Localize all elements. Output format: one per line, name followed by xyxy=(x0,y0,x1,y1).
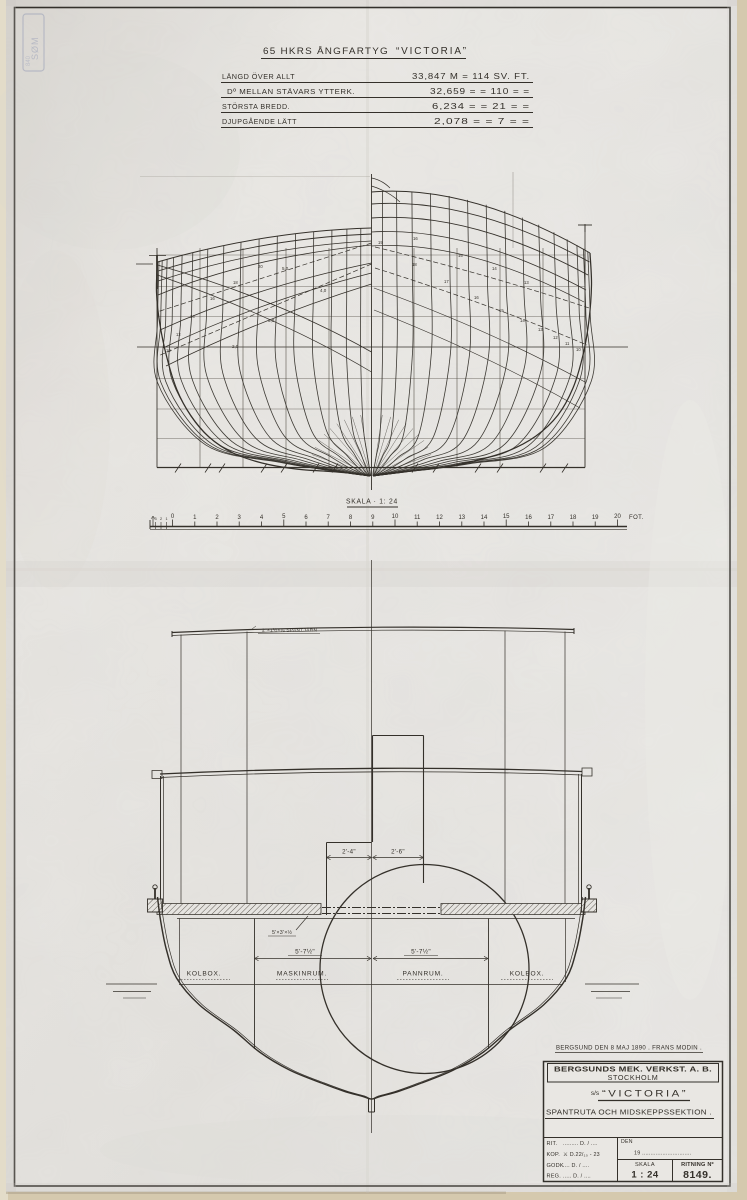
svg-text:REG.: REG. xyxy=(547,1174,562,1180)
svg-text:DEN: DEN xyxy=(621,1139,633,1145)
svg-text:RIT.: RIT. xyxy=(547,1141,558,1147)
svg-text:18: 18 xyxy=(233,280,238,285)
svg-text:15: 15 xyxy=(499,308,504,313)
svg-text:5,0: 5,0 xyxy=(282,266,289,271)
svg-text:DJUPGÅENDE LÄTT: DJUPGÅENDE LÄTT xyxy=(222,117,297,126)
svg-text:18: 18 xyxy=(570,515,577,521)
svg-text:⚔ D.22/₁₀ - 23: ⚔ D.22/₁₀ - 23 xyxy=(563,1152,600,1158)
svg-text:GODK: GODK xyxy=(547,1163,564,1169)
svg-text:14: 14 xyxy=(520,318,525,323)
svg-text:65 HKRS ÅNGFARTYG: 65 HKRS ÅNGFARTYG xyxy=(263,46,389,57)
svg-text:16: 16 xyxy=(210,296,215,301)
svg-text:5'×3'×½: 5'×3'×½ xyxy=(272,929,293,936)
svg-text:15: 15 xyxy=(458,253,463,258)
svg-text:STÖRSTA BREDD.: STÖRSTA BREDD. xyxy=(222,102,290,111)
svg-text:32,659 = = 110 = =: 32,659 = = 110 = = xyxy=(430,87,530,96)
svg-text:10: 10 xyxy=(576,347,581,352)
svg-text:14: 14 xyxy=(492,266,497,271)
svg-text:18: 18 xyxy=(412,262,417,267)
svg-text:SPANTRUTA OCH MIDSKEPPSSEKTION: SPANTRUTA OCH MIDSKEPPSSEKTION . xyxy=(546,1108,712,1117)
svg-text:17: 17 xyxy=(547,515,554,521)
svg-text:STOCKHOLM: STOCKHOLM xyxy=(608,1073,659,1082)
svg-text:20: 20 xyxy=(258,264,263,269)
svg-text:Dº MELLAN STÄVARS YTTERK.: Dº MELLAN STÄVARS YTTERK. xyxy=(227,87,355,96)
svg-text:KOP.: KOP. xyxy=(547,1152,561,1158)
svg-text:19: 19 xyxy=(592,515,599,521)
svg-text:20: 20 xyxy=(614,514,621,520)
svg-text:KOLBOX.: KOLBOX. xyxy=(510,971,545,978)
svg-text:1: 1 xyxy=(165,517,167,521)
svg-text:5'-7½": 5'-7½" xyxy=(295,948,315,956)
svg-text:SKALA: SKALA xyxy=(635,1162,655,1168)
svg-text:13: 13 xyxy=(524,280,529,285)
svg-text:2,0: 2,0 xyxy=(232,344,239,349)
svg-text:FOT.: FOT. xyxy=(629,515,644,521)
svg-text:1 : 24: 1 : 24 xyxy=(631,1170,659,1181)
svg-text:12: 12 xyxy=(176,332,181,337)
svg-text:“VICTORIA”: “VICTORIA” xyxy=(602,1089,688,1099)
svg-text:KOLBOX.: KOLBOX. xyxy=(187,971,222,978)
svg-text:6,234 = = 21 = =: 6,234 = = 21 = = xyxy=(432,102,530,111)
svg-text:MASKINRUM.: MASKINRUM. xyxy=(277,971,327,978)
svg-text:4,0: 4,0 xyxy=(320,288,327,293)
svg-text:19: 19 xyxy=(378,240,383,245)
svg-text:2"×1½×¼ SPANTJÄRN: 2"×1½×¼ SPANTJÄRN xyxy=(262,627,317,634)
svg-text:3,0: 3,0 xyxy=(268,318,275,323)
svg-text:12: 12 xyxy=(553,335,558,340)
svg-text:840: 840 xyxy=(26,55,32,66)
svg-text:14: 14 xyxy=(190,314,195,319)
svg-text:SKALA · 1: 24: SKALA · 1: 24 xyxy=(346,497,398,506)
svg-text:2,078 = = 7 = =: 2,078 = = 7 = = xyxy=(434,117,530,126)
svg-text:2'-4": 2'-4" xyxy=(342,849,356,856)
svg-text:BERGSUND DEN 8 MAJ 1890 . FR: BERGSUND DEN 8 MAJ 1890 . FRANS MODIN . xyxy=(556,1045,702,1052)
svg-text:10: 10 xyxy=(392,514,399,520)
svg-text:2: 2 xyxy=(160,517,162,521)
svg-text:19 ..........................: 19 ............................. xyxy=(634,1151,691,1157)
svg-text:14: 14 xyxy=(481,515,488,521)
svg-text:11: 11 xyxy=(414,515,421,521)
svg-text:“VICTORIA”: “VICTORIA” xyxy=(396,45,468,57)
svg-text:33,847 M = 114 SV. FT.: 33,847 M = 114 SV. FT. xyxy=(412,72,530,81)
svg-text:.... D. / ....: .... D. / .... xyxy=(563,1163,589,1169)
svg-text:10: 10 xyxy=(166,348,171,353)
svg-text:RITNING Nº: RITNING Nº xyxy=(681,1162,714,1168)
svg-text:17: 17 xyxy=(444,279,449,284)
svg-text:12: 12 xyxy=(436,515,443,521)
svg-text:15: 15 xyxy=(503,514,510,520)
svg-text:13: 13 xyxy=(458,515,465,521)
svg-text:5'-7½": 5'-7½" xyxy=(411,948,431,956)
svg-text:LÄNGD ÖVER ALLT: LÄNGD ÖVER ALLT xyxy=(222,72,295,81)
svg-text:..... D. / ....: ..... D. / .... xyxy=(563,1174,591,1180)
svg-text:8149.: 8149. xyxy=(683,1169,712,1181)
svg-text:11: 11 xyxy=(565,341,570,346)
svg-text:13: 13 xyxy=(538,327,543,332)
svg-text:16: 16 xyxy=(525,515,532,521)
svg-text:PANNRUM.: PANNRUM. xyxy=(402,971,443,978)
svg-text:2'-6": 2'-6" xyxy=(391,849,405,856)
svg-text:16: 16 xyxy=(413,236,418,241)
svg-text:......... D. / ....: ......... D. / .... xyxy=(563,1141,598,1147)
svg-text:s/s: s/s xyxy=(591,1090,600,1097)
svg-text:16: 16 xyxy=(474,295,479,300)
